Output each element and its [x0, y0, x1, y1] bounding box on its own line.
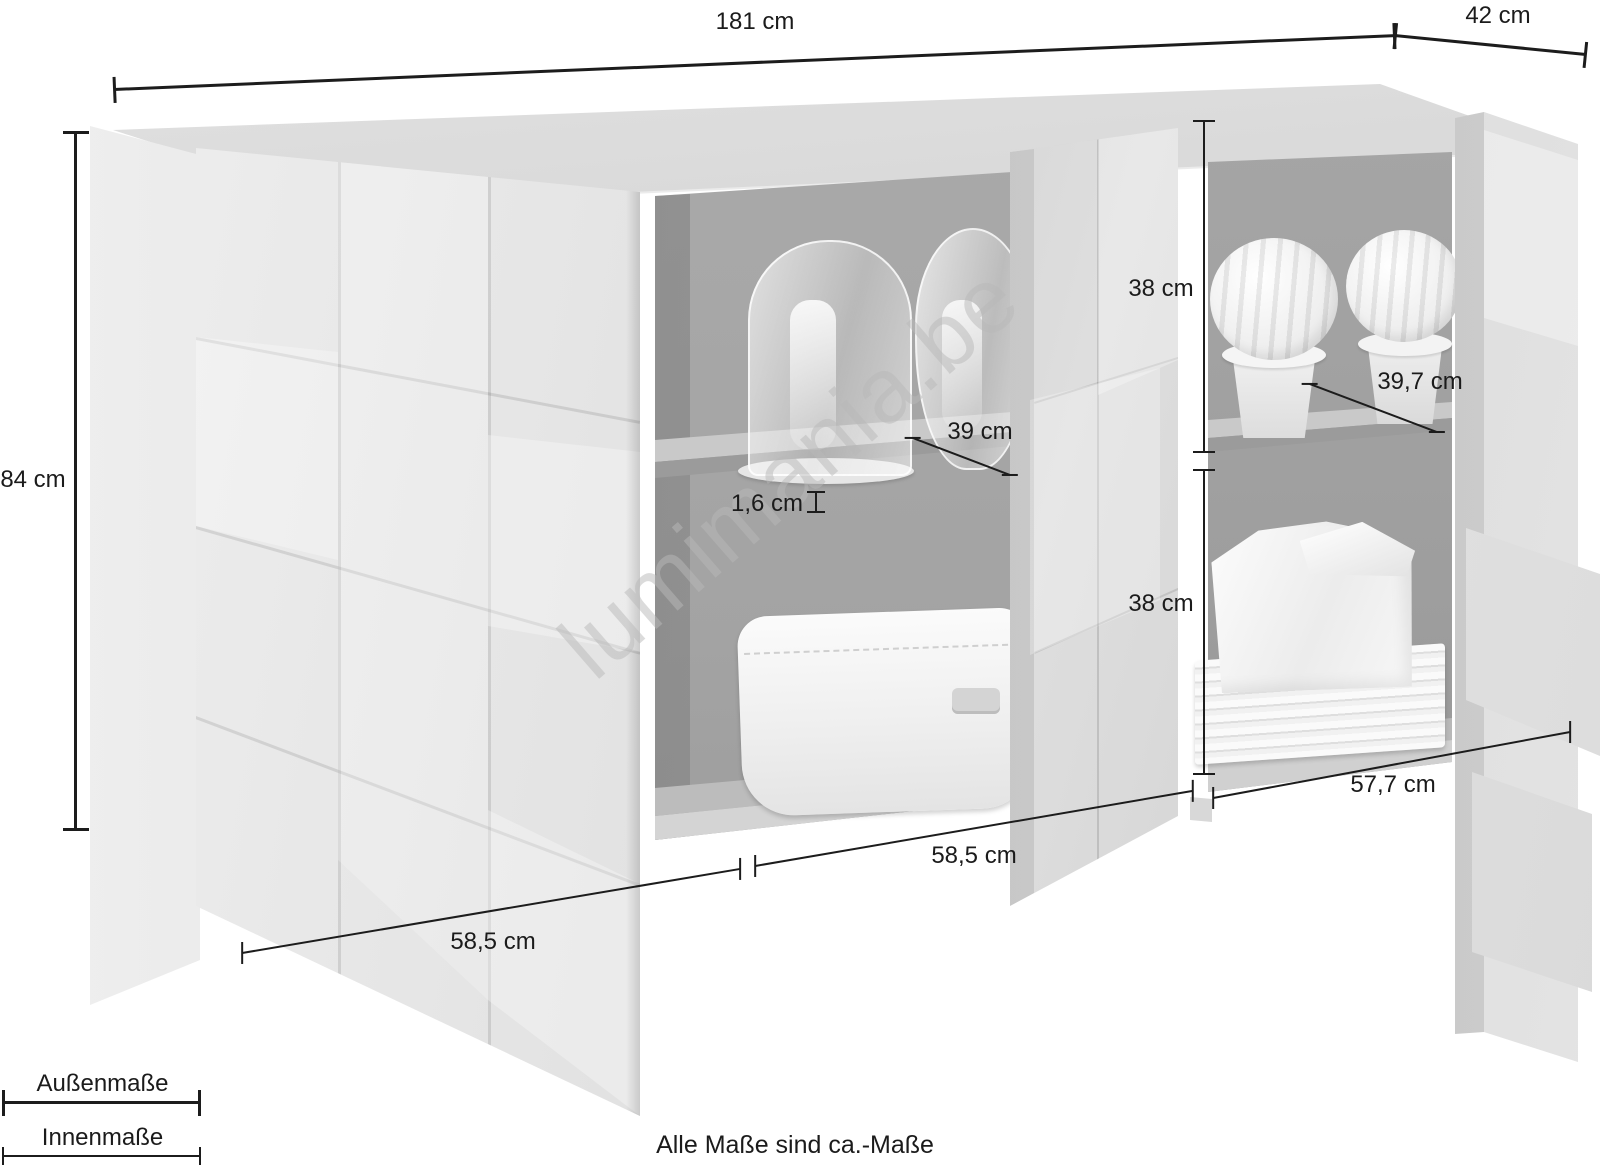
legend-inner-label: Innenmaße	[25, 1124, 180, 1152]
dim-label-inner-width-left: 58,5 cm	[437, 928, 549, 956]
cactus-right-ribs	[1346, 230, 1462, 342]
dim-line-depth	[1395, 34, 1586, 56]
dim-label-total-width: 181 cm	[690, 8, 820, 36]
shelf-thickness-marker	[815, 492, 817, 512]
footer-note: Alle Maße sind ca.-Maße	[630, 1131, 960, 1160]
dim-label-depth: 42 cm	[1443, 2, 1553, 30]
dim-label-height: 84 cm	[0, 466, 68, 494]
dim-line-total-width	[114, 34, 1395, 91]
legend-inner-line	[3, 1155, 200, 1157]
legend-outer-line	[3, 1101, 200, 1104]
storage-box-handle	[952, 688, 1000, 714]
dim-line-lower-inner-height	[1203, 469, 1205, 775]
dim-label-lower-inner-height: 38 cm	[1115, 590, 1207, 618]
legend-outer-label: Außenmaße	[25, 1070, 180, 1098]
dim-label-upper-inner-height: 38 cm	[1115, 275, 1207, 303]
dim-label-shelf-thickness: 1,6 cm	[722, 490, 812, 518]
product-dimension-diagram: lumimania.be 181 cm 42 cm 84 cm 38 cm 38…	[0, 0, 1600, 1169]
dim-label-inner-width-middle: 58,5 cm	[918, 842, 1030, 870]
dim-label-inner-depth-left: 39 cm	[936, 418, 1024, 446]
cactus-left-ribs	[1210, 238, 1338, 360]
dim-line-height	[74, 132, 77, 830]
dim-label-inner-depth-right: 39,7 cm	[1345, 368, 1495, 396]
dim-label-inner-width-right: 57,7 cm	[1337, 771, 1449, 799]
